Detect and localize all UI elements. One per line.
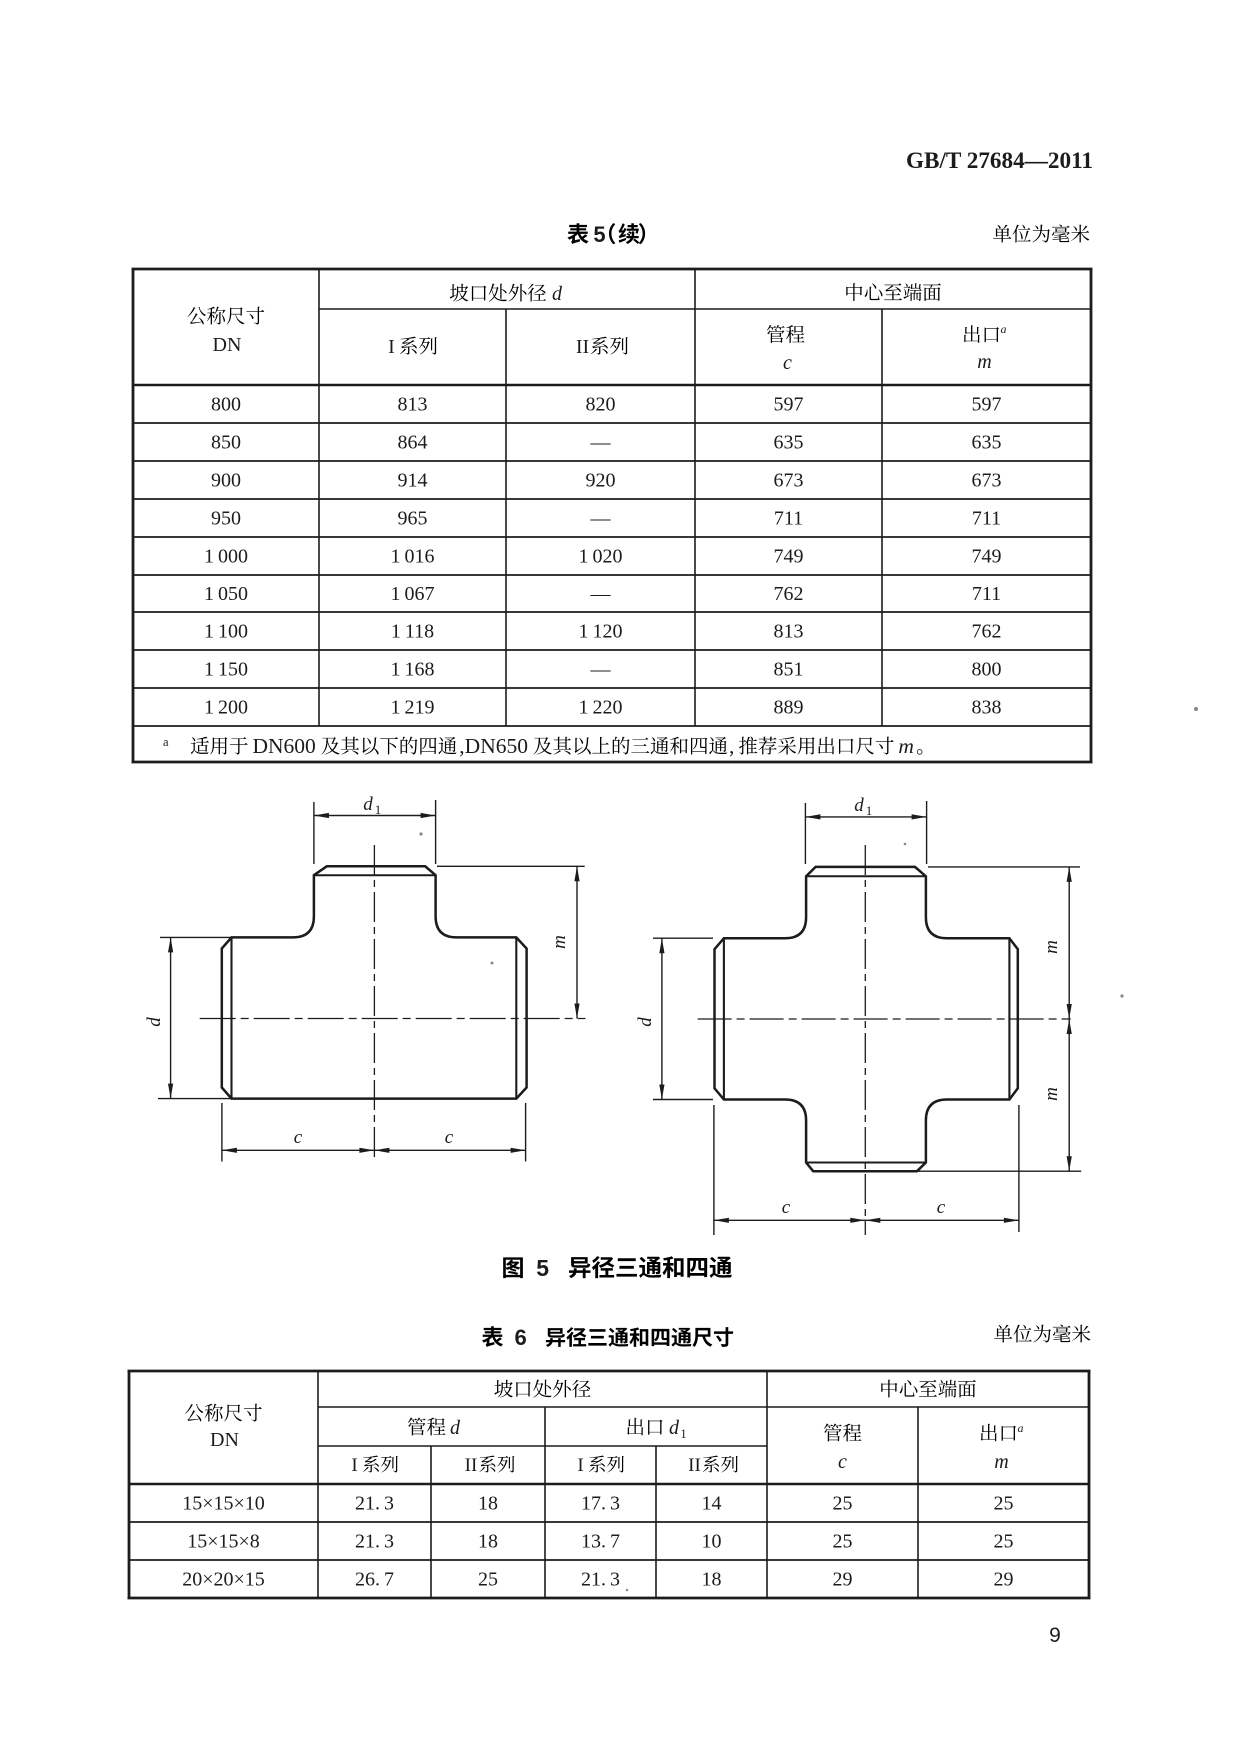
svg-text:20×20×15: 20×20×15	[182, 1569, 265, 1591]
svg-text:762: 762	[774, 583, 804, 605]
svg-text:21. 3: 21. 3	[581, 1569, 620, 1591]
svg-text:15×15×10: 15×15×10	[182, 1493, 265, 1515]
svg-text:c: c	[294, 1127, 303, 1148]
svg-text:21. 3: 21. 3	[355, 1493, 394, 1515]
svg-text:838: 838	[972, 697, 1002, 719]
svg-text:m: m	[1041, 940, 1062, 954]
svg-text:18: 18	[702, 1569, 722, 1591]
svg-text:1 220: 1 220	[578, 697, 622, 719]
svg-text:1: 1	[375, 802, 382, 817]
svg-text:m: m	[994, 1451, 1008, 1473]
svg-text:920: 920	[586, 470, 616, 492]
svg-text:1 168: 1 168	[390, 659, 434, 681]
svg-text:c: c	[445, 1127, 454, 1148]
svg-text:DN: DN	[213, 334, 242, 356]
svg-text:m: m	[977, 351, 991, 373]
svg-text:II: II	[576, 336, 589, 358]
svg-text:—: —	[590, 508, 612, 530]
svg-text:a: a	[1018, 1421, 1024, 1435]
svg-text:25: 25	[478, 1569, 498, 1591]
svg-text:1 200: 1 200	[204, 697, 248, 719]
svg-text:673: 673	[774, 470, 804, 492]
svg-text:1 118: 1 118	[391, 621, 434, 643]
svg-text:850: 850	[211, 432, 241, 454]
svg-text:1 016: 1 016	[390, 546, 434, 568]
svg-text:d: d	[363, 794, 373, 815]
svg-text:GB/T 27684—2011: GB/T 27684—2011	[906, 148, 1093, 174]
svg-text:5: 5	[593, 222, 605, 247]
svg-text:9: 9	[1049, 1624, 1061, 1647]
svg-text:1 150: 1 150	[204, 659, 248, 681]
svg-text:851: 851	[774, 659, 804, 681]
svg-text:I: I	[388, 336, 395, 358]
svg-text:d: d	[669, 1417, 680, 1439]
svg-text:5: 5	[536, 1255, 549, 1281]
svg-text:m: m	[1041, 1087, 1062, 1101]
svg-text:I: I	[351, 1455, 357, 1476]
svg-text:1 120: 1 120	[578, 621, 622, 643]
svg-text:13. 7: 13. 7	[581, 1531, 620, 1553]
svg-text:762: 762	[972, 621, 1002, 643]
svg-text:17. 3: 17. 3	[581, 1493, 620, 1515]
svg-text:29: 29	[833, 1569, 853, 1591]
svg-text:—: —	[590, 583, 612, 605]
svg-text:800: 800	[972, 659, 1002, 681]
svg-text:c: c	[782, 1197, 791, 1218]
svg-text:597: 597	[774, 394, 804, 416]
svg-text:597: 597	[972, 394, 1002, 416]
svg-text:c: c	[838, 1451, 847, 1473]
svg-text:749: 749	[774, 546, 804, 568]
svg-text:965: 965	[398, 508, 428, 530]
svg-text:21. 3: 21. 3	[355, 1531, 394, 1553]
svg-text:635: 635	[774, 432, 804, 454]
svg-text:25: 25	[833, 1493, 853, 1515]
svg-text:749: 749	[972, 546, 1002, 568]
svg-text:—: —	[590, 432, 612, 454]
svg-text:1 067: 1 067	[390, 583, 434, 605]
svg-text:,: ,	[729, 734, 734, 758]
svg-text:813: 813	[774, 621, 804, 643]
svg-text:1: 1	[680, 1427, 686, 1441]
svg-text:d: d	[450, 1417, 461, 1439]
svg-text:1 050: 1 050	[204, 583, 248, 605]
svg-text:820: 820	[586, 394, 616, 416]
svg-text:6: 6	[514, 1325, 526, 1350]
svg-text:d: d	[552, 283, 563, 305]
svg-text:DN: DN	[210, 1429, 239, 1451]
svg-text:c: c	[937, 1197, 946, 1218]
svg-text:DN600: DN600	[253, 734, 316, 758]
svg-text:10: 10	[702, 1531, 722, 1553]
svg-text:1 100: 1 100	[204, 621, 248, 643]
svg-text:29: 29	[994, 1569, 1014, 1591]
svg-text:I: I	[577, 1455, 583, 1476]
svg-text:635: 635	[972, 432, 1002, 454]
svg-text:,DN650: ,DN650	[459, 734, 528, 758]
svg-text:864: 864	[398, 432, 428, 454]
svg-text:26. 7: 26. 7	[355, 1569, 394, 1591]
svg-text:813: 813	[398, 394, 428, 416]
svg-text:711: 711	[972, 583, 1001, 605]
svg-text:d: d	[144, 1017, 165, 1027]
svg-text:II: II	[688, 1455, 701, 1476]
svg-text:d: d	[854, 795, 864, 816]
svg-text:18: 18	[478, 1493, 498, 1515]
svg-text:II: II	[465, 1455, 478, 1476]
svg-text:c: c	[783, 352, 792, 374]
svg-text:m: m	[549, 935, 570, 949]
svg-text:18: 18	[478, 1531, 498, 1553]
svg-text:25: 25	[833, 1531, 853, 1553]
svg-text:1 000: 1 000	[204, 546, 248, 568]
svg-text:800: 800	[211, 394, 241, 416]
svg-text:900: 900	[211, 470, 241, 492]
svg-text:25: 25	[994, 1531, 1014, 1553]
svg-text:1 020: 1 020	[578, 546, 622, 568]
svg-text:673: 673	[972, 470, 1002, 492]
svg-text:1 219: 1 219	[390, 697, 434, 719]
svg-text:14: 14	[702, 1493, 722, 1515]
svg-text:m: m	[898, 734, 914, 758]
svg-text:15×15×8: 15×15×8	[187, 1531, 260, 1553]
svg-text:1: 1	[866, 803, 873, 818]
svg-text:914: 914	[398, 470, 428, 492]
svg-text:a: a	[163, 735, 169, 749]
svg-text:—: —	[590, 659, 612, 681]
svg-text:711: 711	[972, 508, 1001, 530]
svg-text:950: 950	[211, 508, 241, 530]
svg-text:d: d	[635, 1017, 656, 1027]
svg-text:711: 711	[774, 508, 803, 530]
svg-text:25: 25	[994, 1493, 1014, 1515]
svg-text:a: a	[1001, 322, 1007, 336]
svg-text:889: 889	[774, 697, 804, 719]
